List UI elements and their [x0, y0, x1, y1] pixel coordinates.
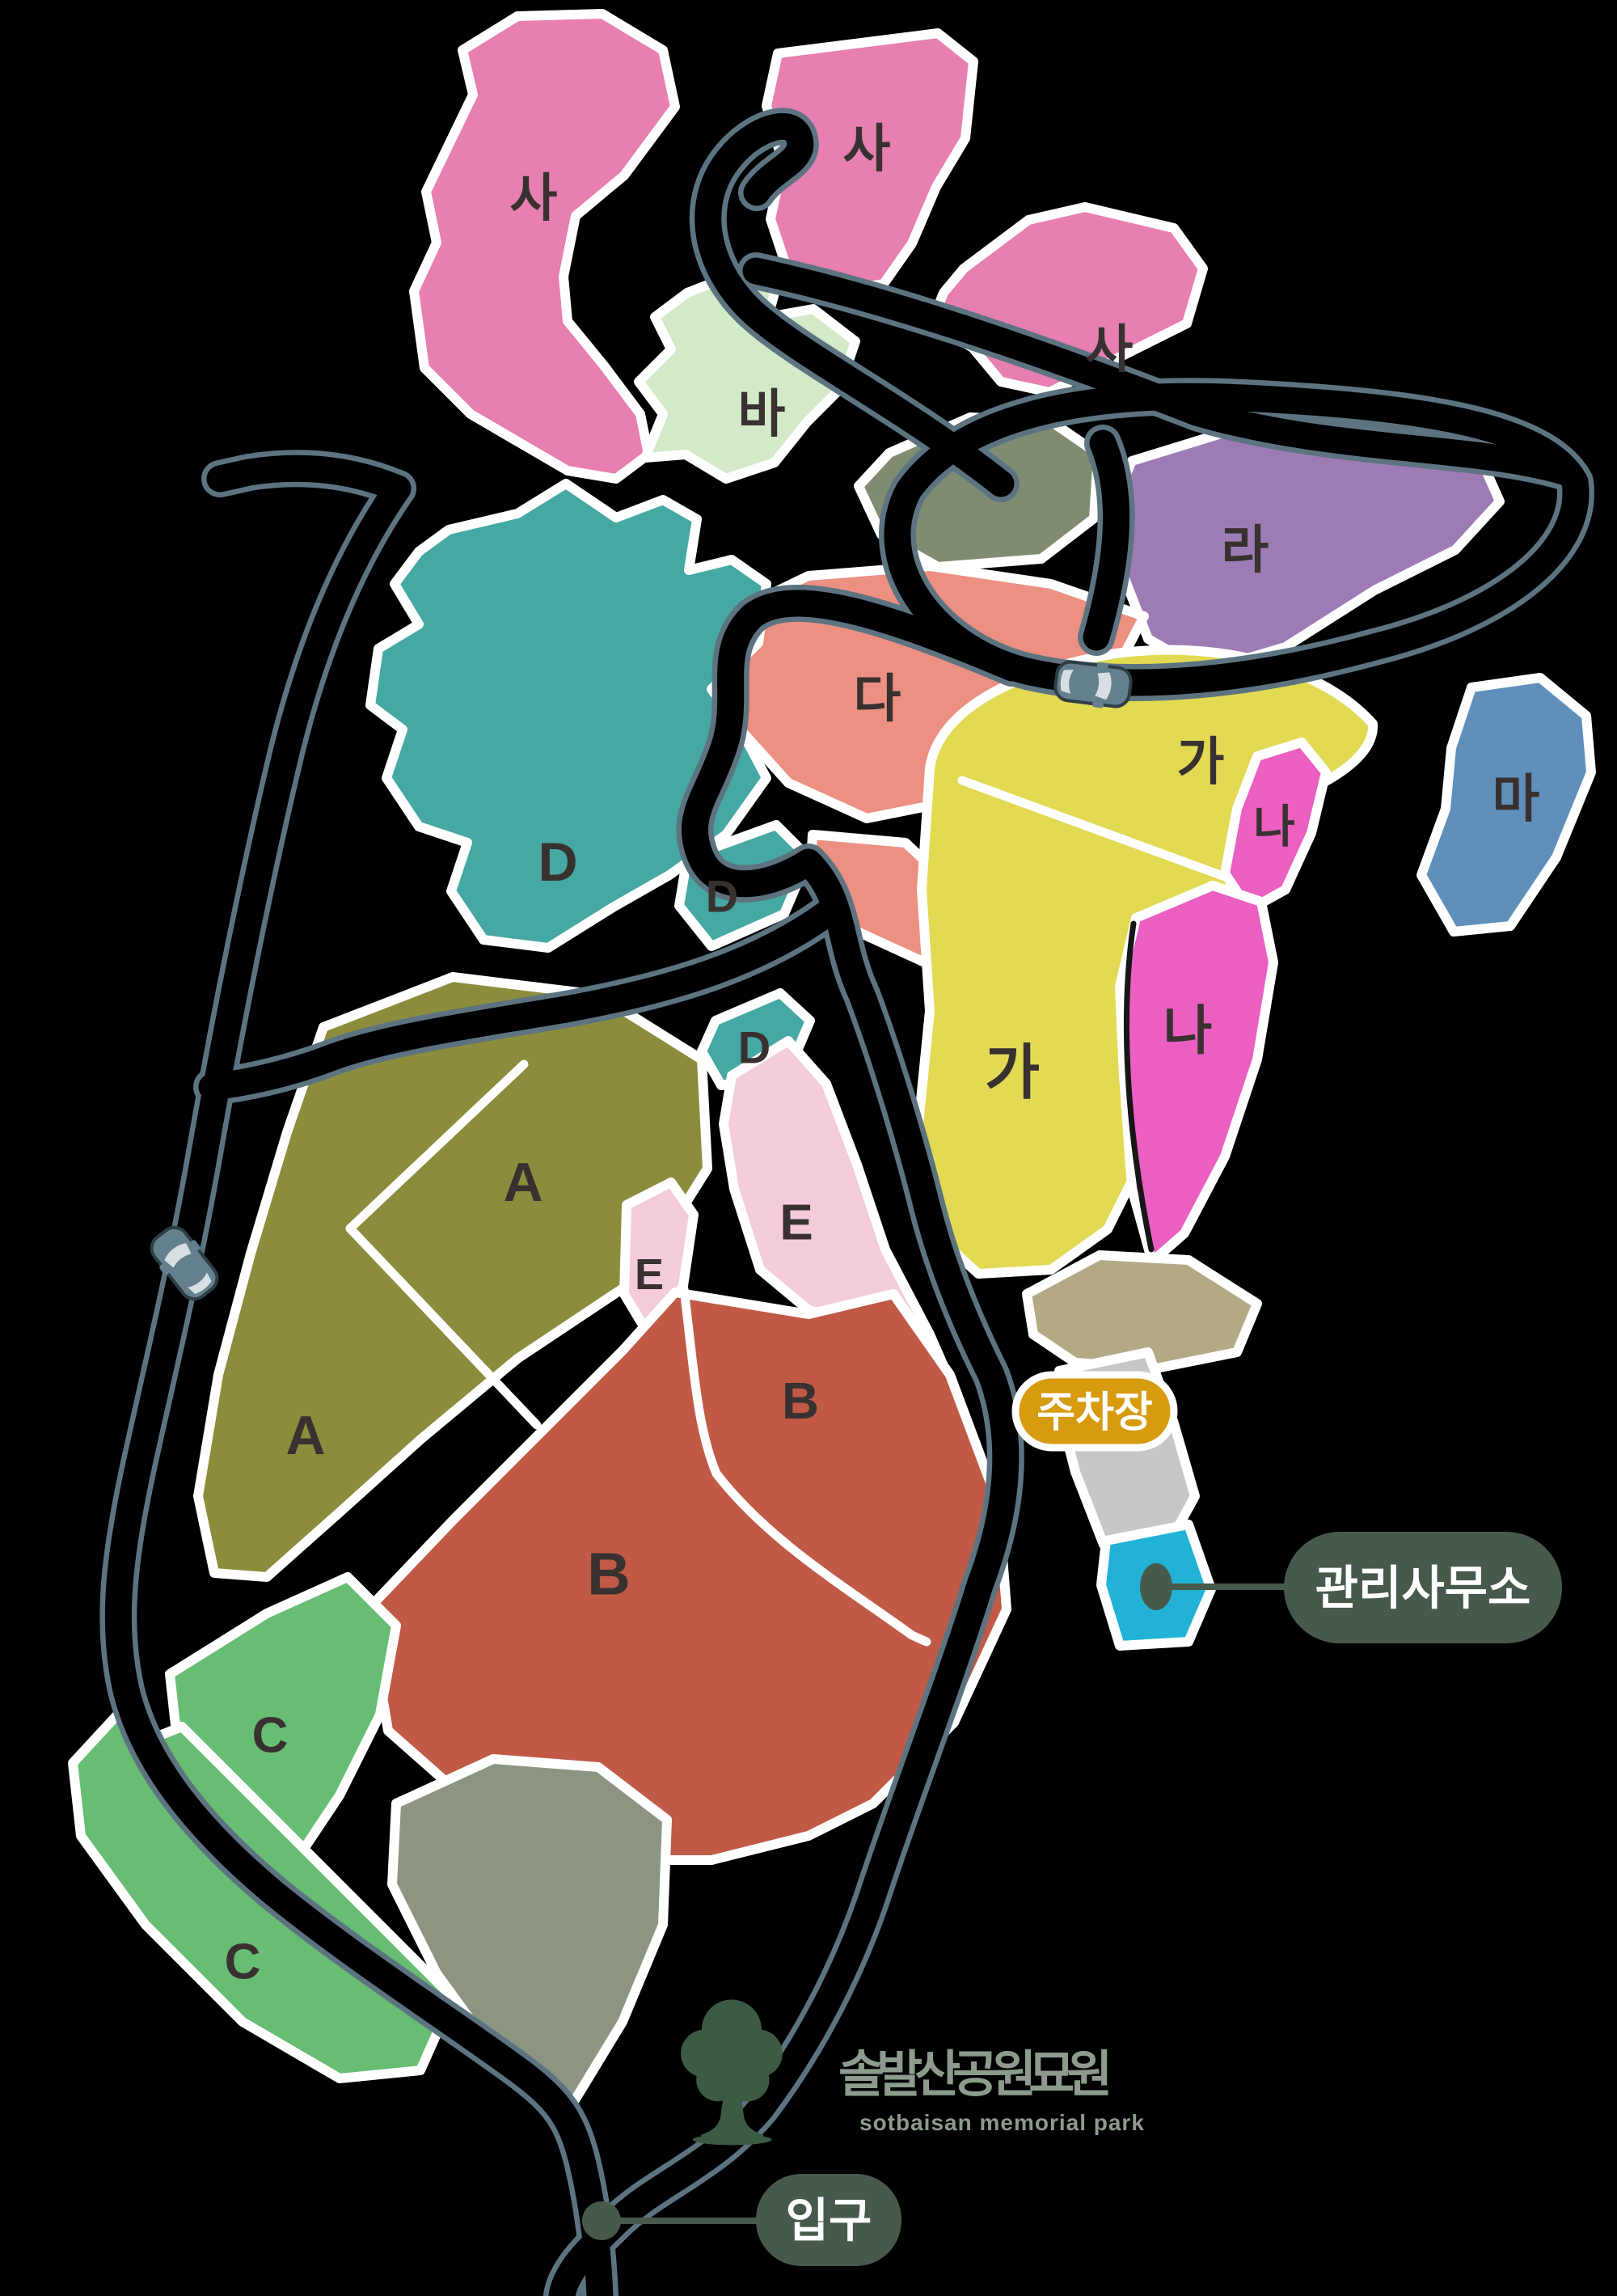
zone-label-ra: 라 [1222, 521, 1269, 579]
logo-title: 솔발산공원묘원 [838, 2048, 1108, 2103]
zone-label-na-2: 나 [1163, 1000, 1213, 1060]
zone-label-na-1: 나 [1253, 801, 1295, 852]
zone-label-ma: 마 [1492, 770, 1540, 828]
map-canvas: 사 사 사 바 라 다 D D D 마 가 나 가 나 A E E A B B … [0, 0, 1617, 2296]
zone-label-sa-3: 사 [1086, 320, 1134, 378]
zone-label-b-2: B [587, 1541, 630, 1608]
entrance-badge-label: 입구 [786, 2195, 872, 2247]
zone-label-da: 다 [854, 670, 901, 728]
zone-label-sa-2: 사 [843, 120, 891, 178]
office-badge-label: 관리사무소 [1315, 1562, 1531, 1615]
zone-label-a-2: A [285, 1405, 325, 1466]
zone-label-d-2: D [706, 871, 738, 922]
zone-label-ba: 바 [738, 385, 786, 443]
zone-label-a-1: A [503, 1152, 543, 1213]
zone-label-sa-1: 사 [510, 169, 558, 227]
parking-badge-label: 주차장 [1036, 1389, 1153, 1436]
zone-label-e-1: E [779, 1195, 813, 1251]
zone-label-ga-1: 가 [1177, 733, 1225, 791]
entrance-dot-icon [582, 2201, 621, 2240]
zone-label-d-1: D [538, 831, 577, 893]
zone-label-c-1: C [252, 1708, 289, 1764]
parking-badge: 주차장 [1015, 1375, 1174, 1448]
zone-label-b-1: B [782, 1372, 819, 1430]
zone-label-c-2: C [225, 1934, 261, 1990]
logo-subtitle: sotbaisan memorial park [859, 2110, 1145, 2135]
office-dot-icon [1140, 1563, 1172, 1610]
zone-label-ga-2: 가 [985, 1039, 1040, 1106]
zone-label-e-2: E [635, 1250, 664, 1299]
zone-label-d-3: D [738, 1022, 771, 1073]
park-map: 사 사 사 바 라 다 D D D 마 가 나 가 나 A E E A B B … [0, 0, 1617, 2296]
